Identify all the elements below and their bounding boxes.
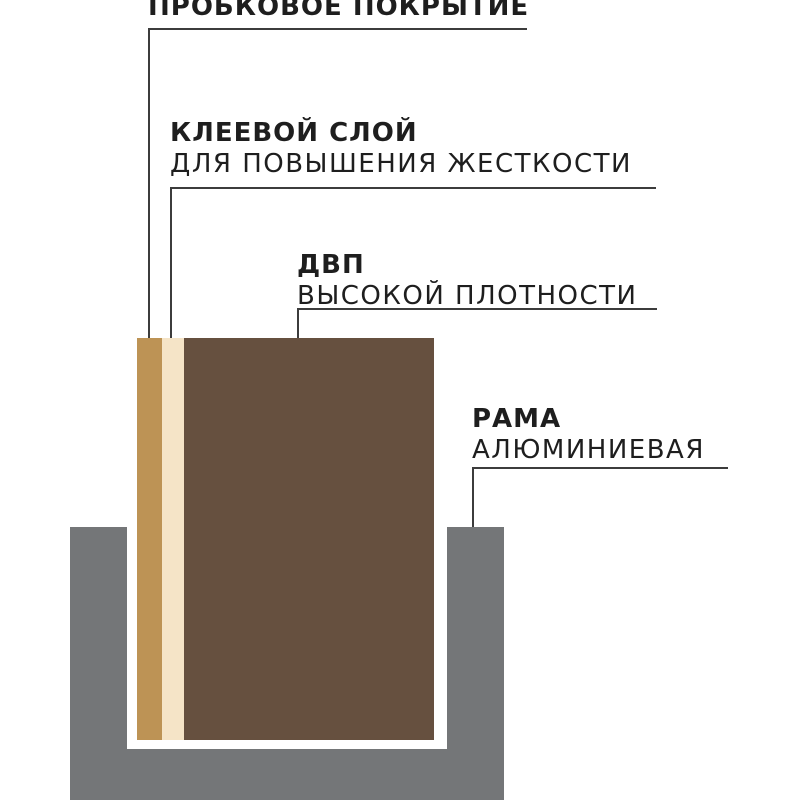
callout-line-frame bbox=[472, 467, 728, 527]
label-frame-subtitle: АЛЮМИНИЕВАЯ bbox=[472, 435, 705, 466]
diagram-canvas: ПРОБКОВОЕ ПОКРЫТИЕ КЛЕЕВОЙ СЛОЙ ДЛЯ ПОВЫ… bbox=[0, 0, 800, 800]
aluminum-frame bbox=[70, 527, 504, 800]
label-hdf-title: ДВП bbox=[297, 250, 637, 281]
callout-line-hdf bbox=[297, 308, 657, 338]
label-cork-covering: ПРОБКОВОЕ ПОКРЫТИЕ bbox=[148, 0, 529, 23]
label-cork-covering-title: ПРОБКОВОЕ ПОКРЫТИЕ bbox=[148, 0, 529, 23]
label-frame-title: РАМА bbox=[472, 404, 705, 435]
label-hdf-subtitle: ВЫСОКОЙ ПЛОТНОСТИ bbox=[297, 281, 637, 312]
label-hdf: ДВП ВЫСОКОЙ ПЛОТНОСТИ bbox=[297, 250, 637, 312]
label-frame: РАМА АЛЮМИНИЕВАЯ bbox=[472, 404, 705, 466]
label-adhesive-subtitle: ДЛЯ ПОВЫШЕНИЯ ЖЕСТКОСТИ bbox=[170, 149, 632, 180]
label-adhesive-title: КЛЕЕВОЙ СЛОЙ bbox=[170, 118, 632, 149]
label-adhesive: КЛЕЕВОЙ СЛОЙ ДЛЯ ПОВЫШЕНИЯ ЖЕСТКОСТИ bbox=[170, 118, 632, 180]
